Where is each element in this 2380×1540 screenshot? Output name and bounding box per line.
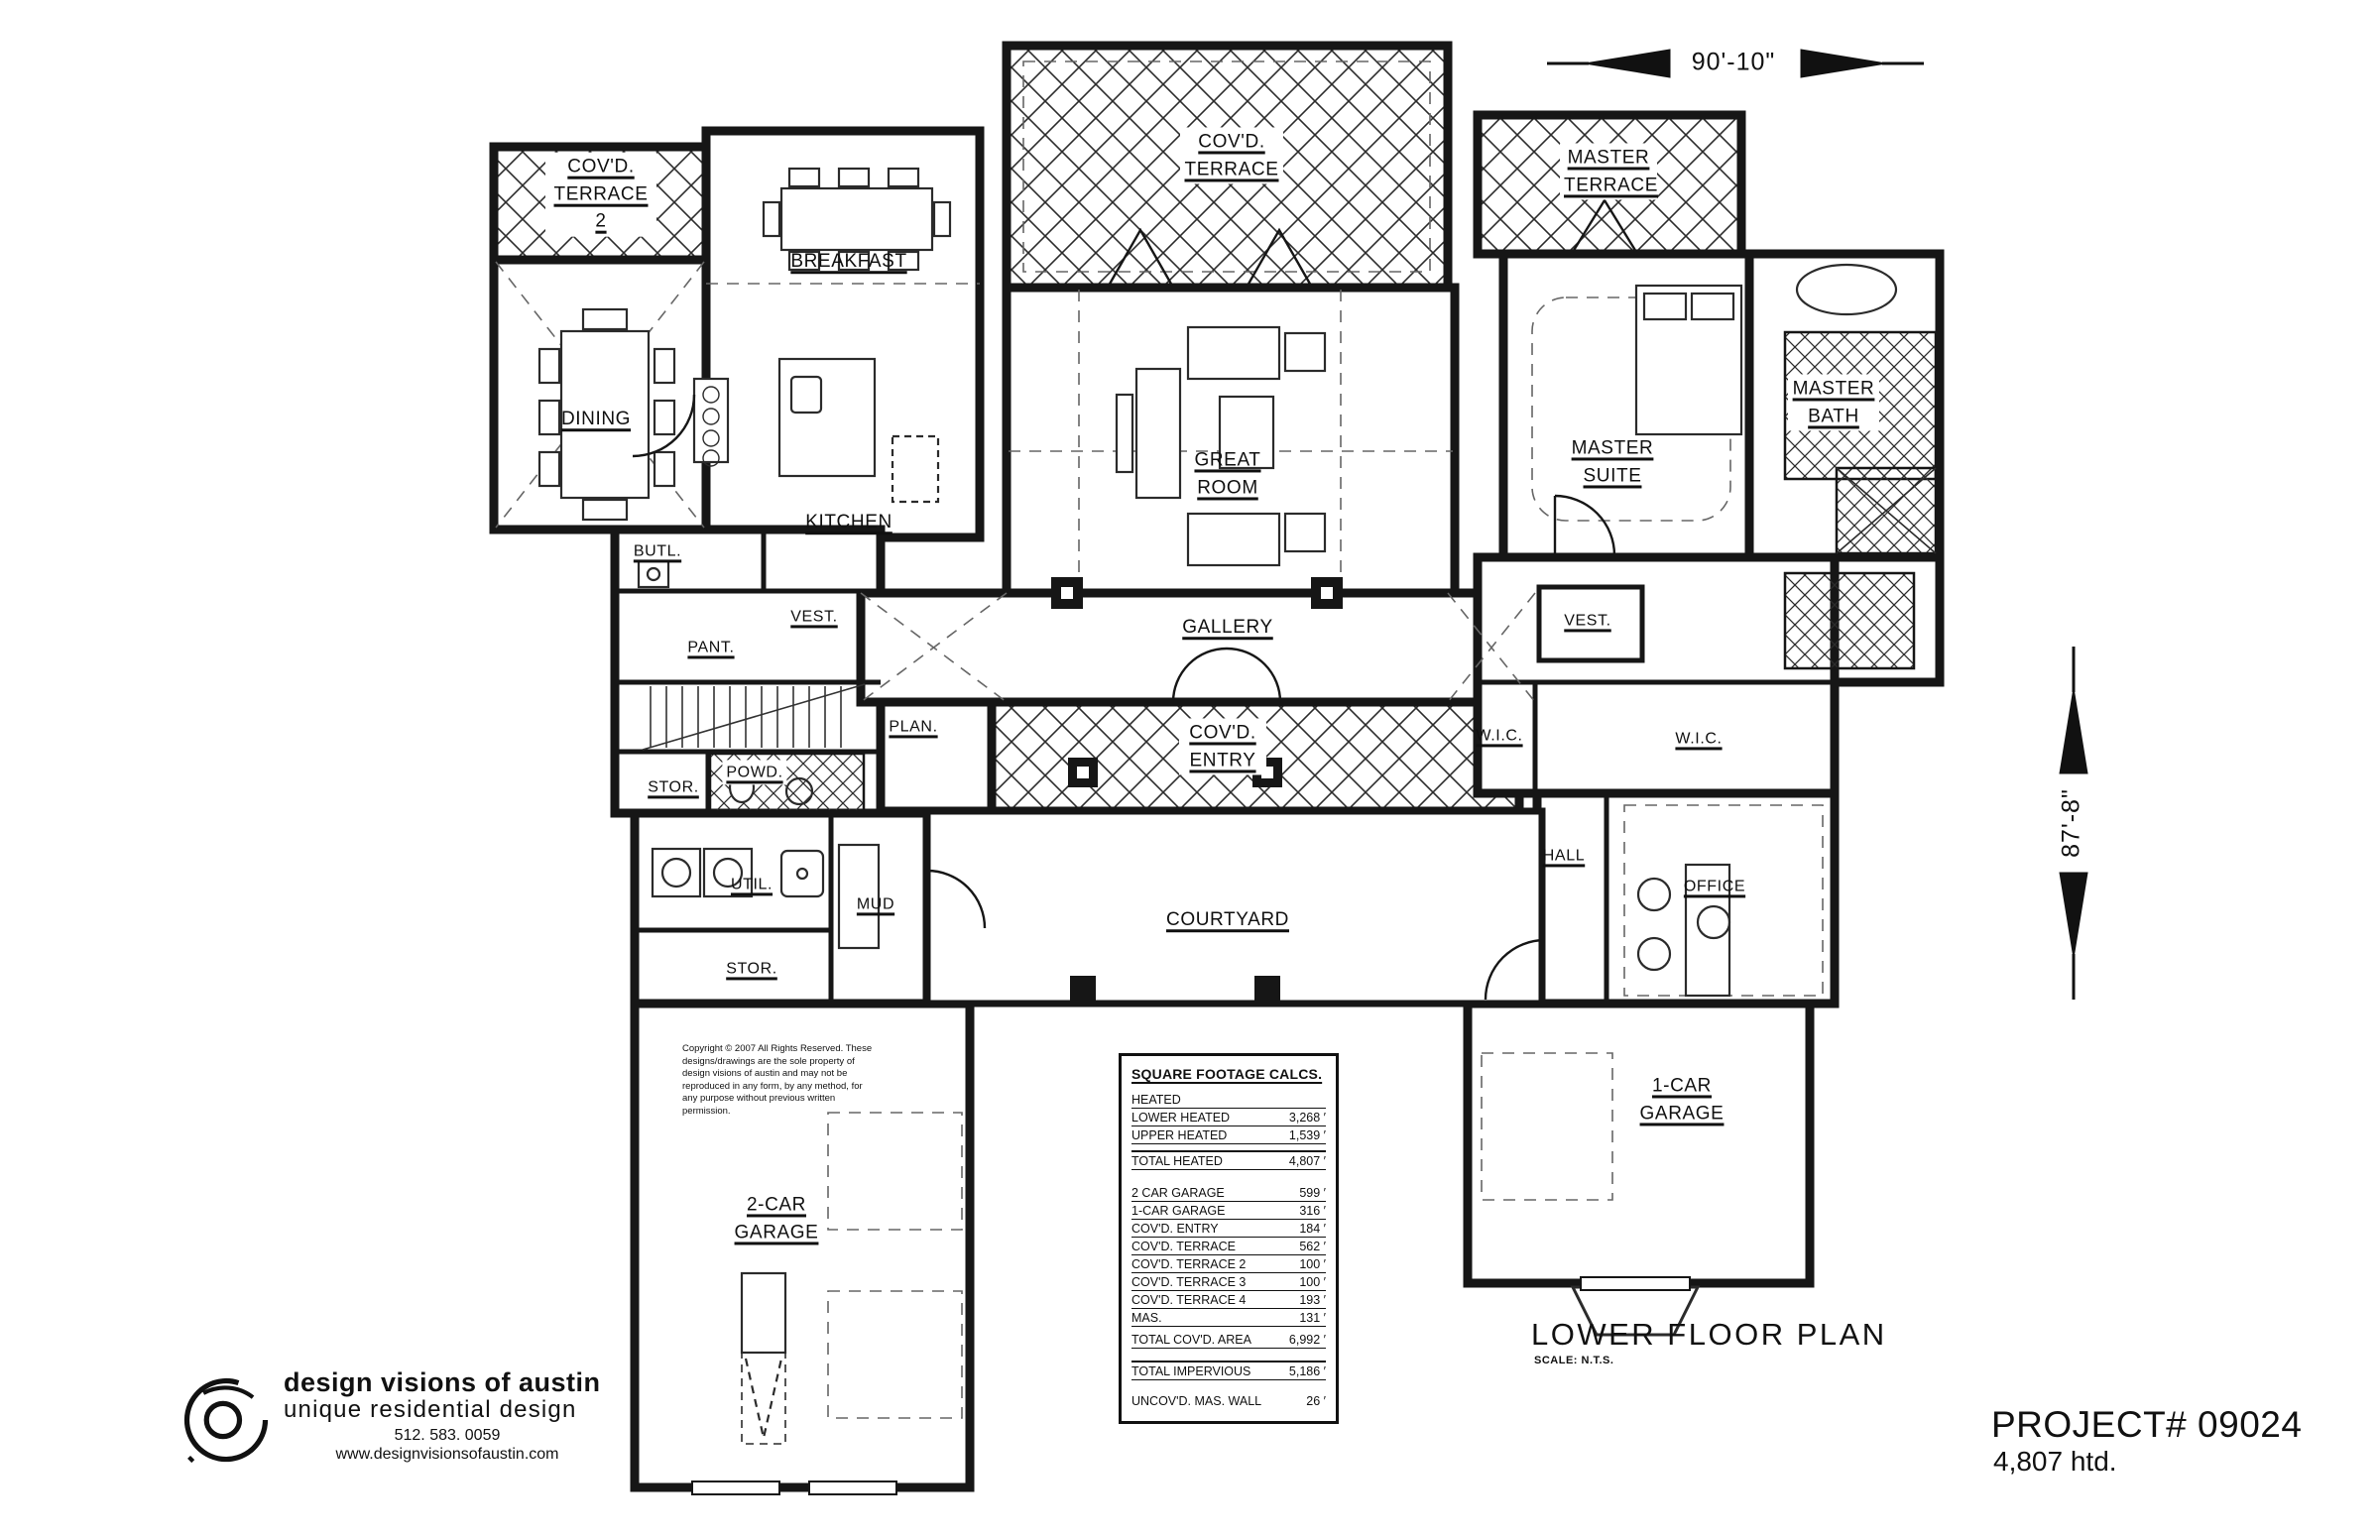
room-label-1car-garage: 1-CAR GARAGE — [1636, 1072, 1727, 1126]
room-label-courtyard: COURTYARD — [1166, 906, 1289, 934]
project-heated: 4,807 htd. — [1993, 1446, 2117, 1478]
room-label-master-bath: MASTER BATH — [1788, 374, 1879, 430]
floor-plan-sheet: COV'D. TERRACE 2 BREAKFAST COV'D. TERRAC… — [0, 0, 2380, 1540]
table-row: HEATED — [1131, 1091, 1326, 1109]
table-row: TOTAL HEATED4,807 ′ — [1131, 1150, 1326, 1170]
project-number: PROJECT# 09024 — [1991, 1404, 2302, 1446]
room-label-wic-large: W.I.C. — [1675, 727, 1722, 750]
table-row: COV'D. ENTRY184 ′ — [1131, 1220, 1326, 1238]
room-label-plan: PLAN. — [889, 715, 937, 738]
room-label-butl: BUTL. — [634, 539, 681, 562]
room-label-pant: PANT. — [687, 636, 734, 658]
room-label-office: OFFICE — [1684, 875, 1745, 897]
logo-website: www.designvisionsofaustin.com — [284, 1446, 611, 1464]
room-label-covd-entry: COV'D. ENTRY — [1179, 718, 1266, 774]
table-row: LOWER HEATED3,268 ′ — [1131, 1109, 1326, 1126]
room-label-stor-upper: STOR. — [648, 775, 699, 798]
table-row: COV'D. TERRACE562 ′ — [1131, 1238, 1326, 1255]
table-row: COV'D. TERRACE 4193 ′ — [1131, 1291, 1326, 1309]
plan-title: LOWER FLOOR PLAN — [1531, 1317, 1887, 1353]
table-row: COV'D. TERRACE 3100 ′ — [1131, 1273, 1326, 1291]
plan-scale: SCALE: N.T.S. — [1534, 1355, 1613, 1366]
room-label-covd-terrace-2: COV'D. TERRACE 2 — [545, 153, 656, 237]
room-label-breakfast: BREAKFAST — [790, 248, 906, 276]
table-title: SQUARE FOOTAGE CALCS. — [1131, 1066, 1326, 1082]
room-label-great-room: GREAT ROOM — [1186, 446, 1269, 501]
room-label-dining: DINING — [561, 406, 631, 433]
room-label-master-terrace: MASTER TERRACE — [1560, 143, 1657, 199]
table-row: COV'D. TERRACE 2100 ′ — [1131, 1255, 1326, 1273]
room-label-stor-lower: STOR. — [726, 957, 777, 980]
room-label-vest-left: VEST. — [790, 605, 837, 628]
table-row: TOTAL IMPERVIOUS5,186 ′ — [1131, 1361, 1326, 1380]
table-row: UPPER HEATED1,539 ′ — [1131, 1126, 1326, 1144]
logo-phone: 512. 583. 0059 — [284, 1427, 611, 1445]
room-label-2car-garage: 2-CAR GARAGE — [731, 1191, 822, 1245]
room-label-gallery: GALLERY — [1182, 614, 1273, 642]
table-row: MAS.131 ′ — [1131, 1309, 1326, 1327]
designer-logo: design visions of austin unique resident… — [175, 1368, 611, 1477]
room-label-kitchen: KITCHEN — [805, 509, 892, 536]
logo-name: design visions of austin — [284, 1368, 611, 1396]
room-label-powd: POWD. — [722, 760, 786, 784]
room-label-covd-terrace: COV'D. TERRACE — [1180, 127, 1283, 183]
table-row: UNCOV'D. MAS. WALL26 ′ — [1131, 1392, 1326, 1409]
table-row: TOTAL COV'D. AREA6,992 ′ — [1131, 1331, 1326, 1349]
table-row: 2 CAR GARAGE599 ′ — [1131, 1184, 1326, 1202]
logo-swirl-icon — [175, 1368, 278, 1477]
table-row: 1-CAR GARAGE316 ′ — [1131, 1202, 1326, 1220]
room-label-vest-right: VEST. — [1564, 609, 1610, 632]
square-footage-table: SQUARE FOOTAGE CALCS. HEATED LOWER HEATE… — [1119, 1053, 1339, 1424]
dimension-height-label: 87'-8" — [2058, 788, 2086, 858]
room-label-master-suite: MASTER SUITE — [1571, 434, 1654, 489]
room-label-wic-small: W.I.C. — [1476, 724, 1522, 747]
logo-tagline: unique residential design — [284, 1396, 611, 1424]
room-label-hall: HALL — [1543, 844, 1585, 867]
logo-text-block: design visions of austin unique resident… — [284, 1368, 611, 1464]
room-label-util: UTIL. — [731, 873, 773, 895]
room-label-mud: MUD — [857, 892, 894, 915]
dimension-width-label: 90'-10" — [1692, 49, 1776, 77]
copyright-notice: Copyright © 2007 All Rights Reserved. Th… — [682, 1043, 879, 1118]
